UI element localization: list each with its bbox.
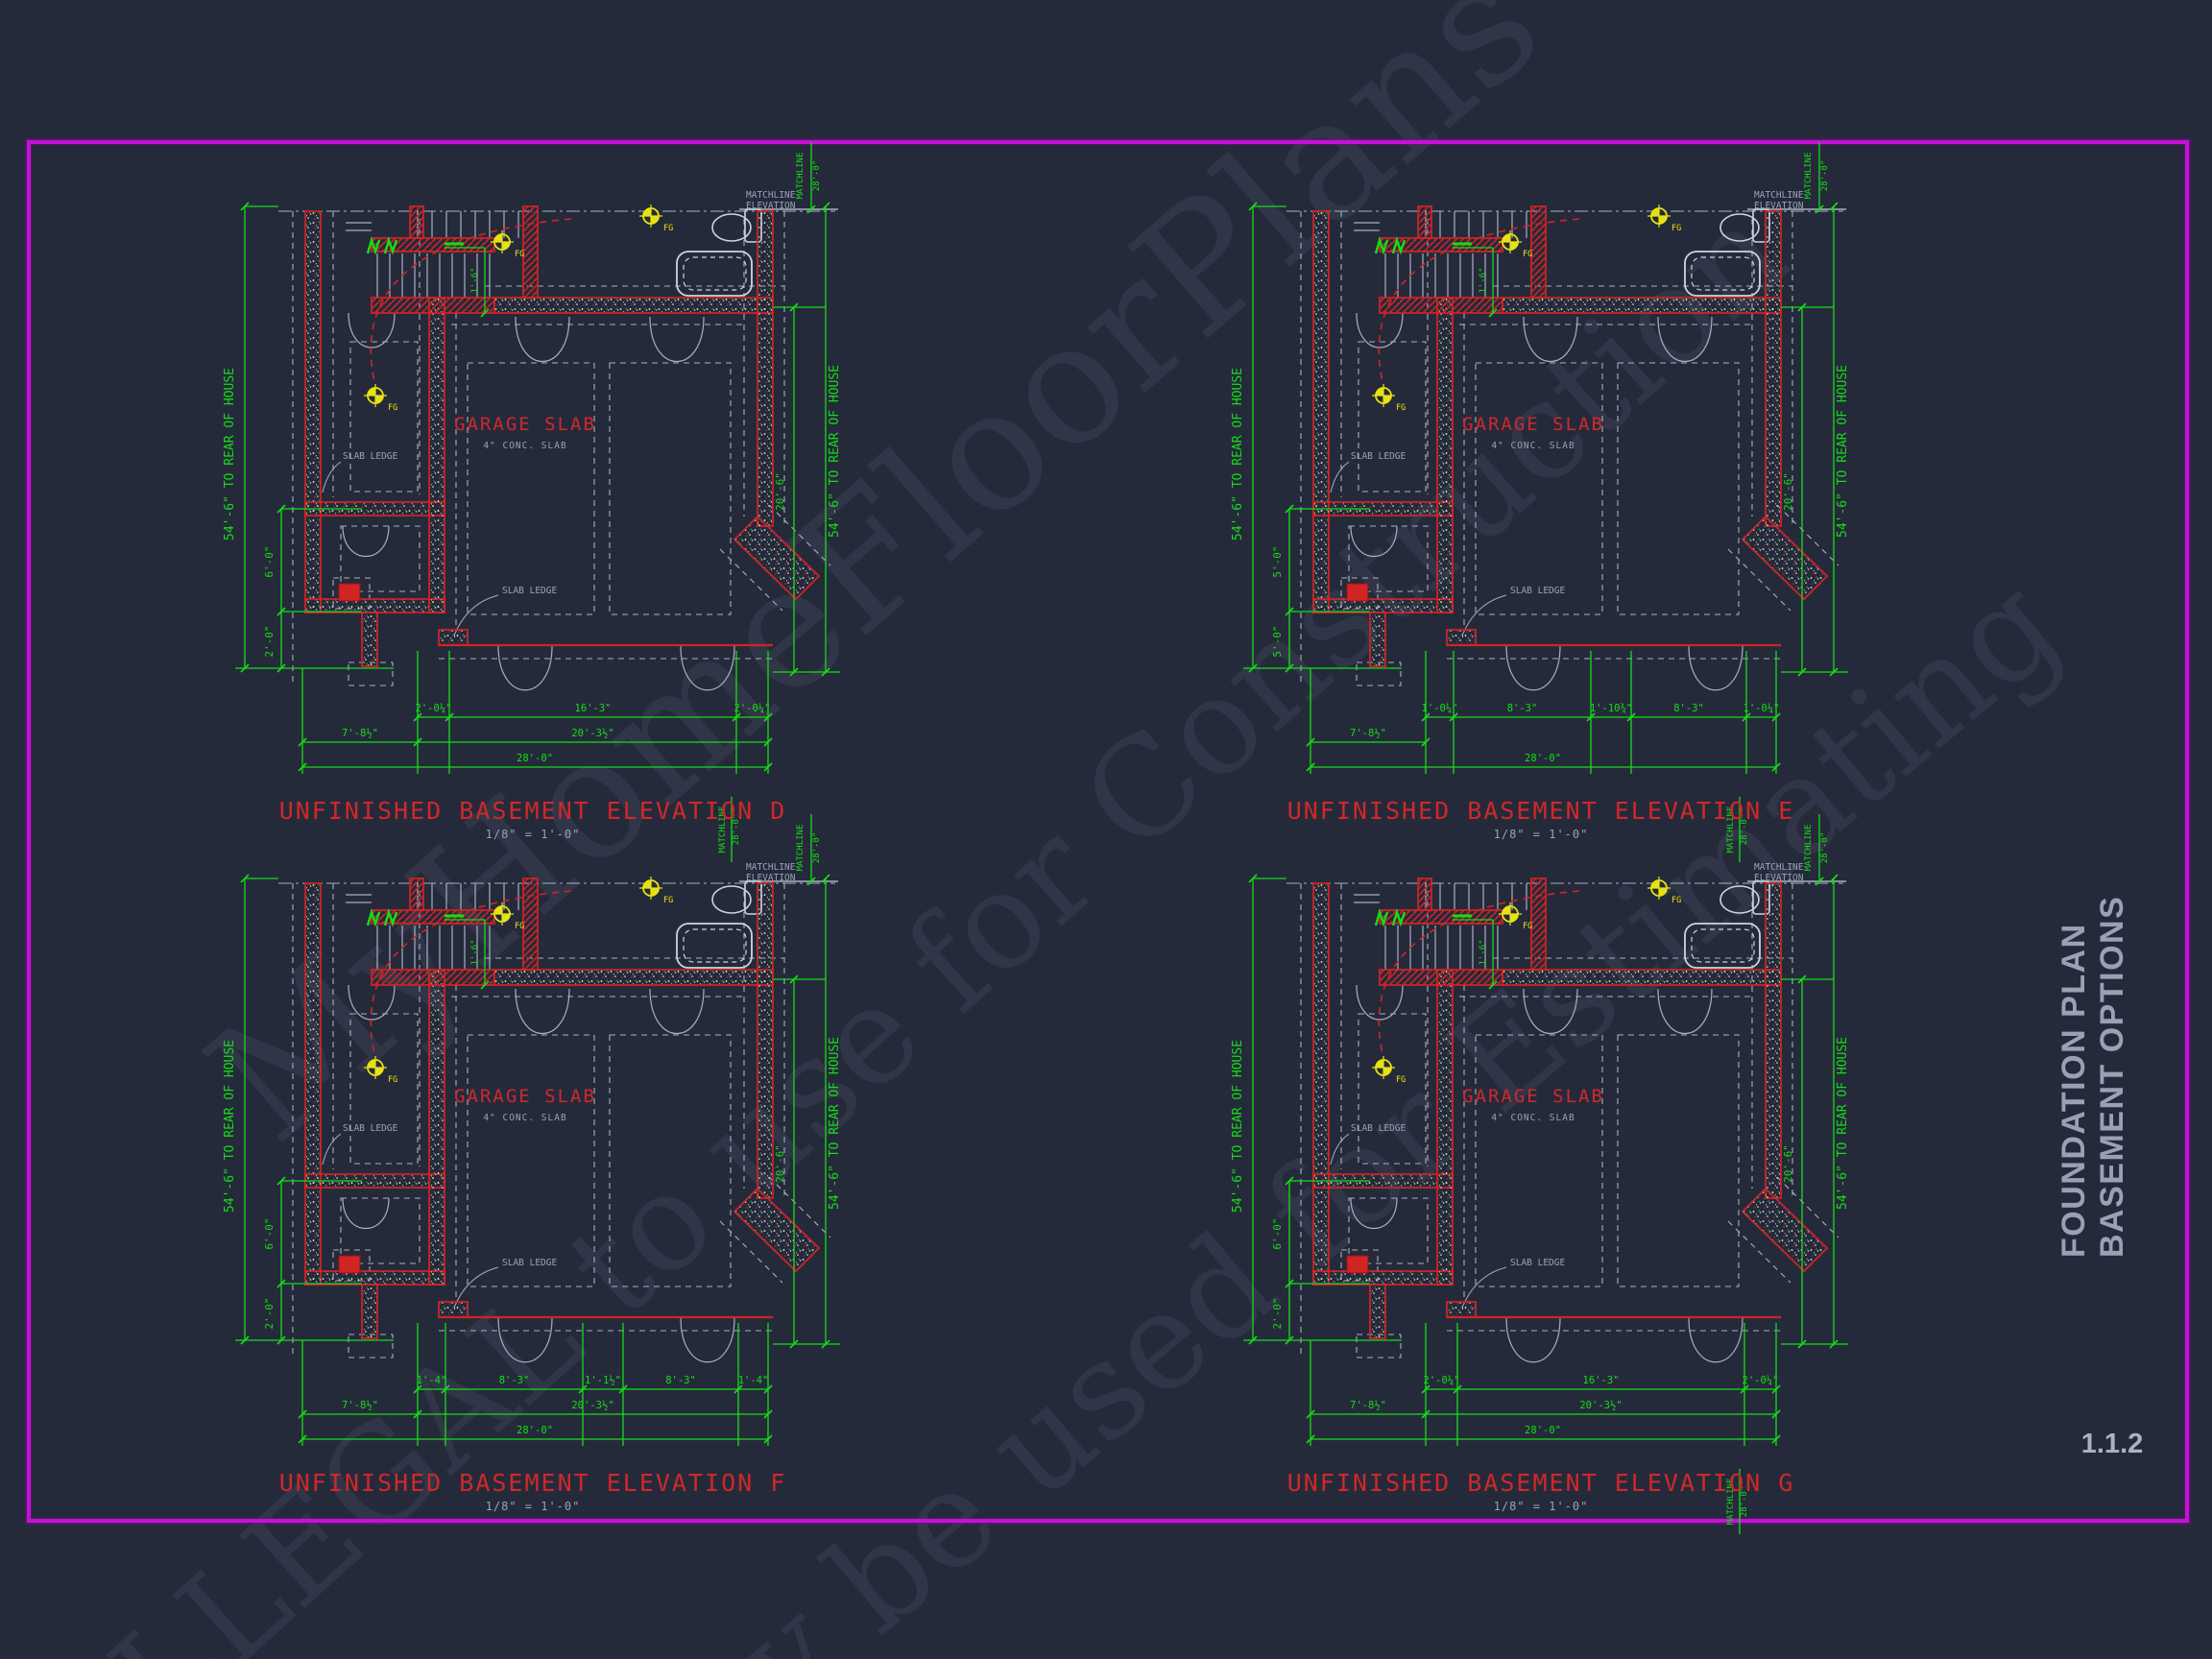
svg-text:2'-0": 2'-0" — [1271, 1297, 1284, 1329]
svg-text:2'-0¼": 2'-0¼" — [734, 703, 771, 714]
drawing-sheet: MyHomeFloorPlans ILLEGAL to use for Cons… — [0, 0, 2212, 1659]
svg-text:54'-6" TO REAR OF HOUSE: 54'-6" TO REAR OF HOUSE — [828, 365, 842, 538]
svg-text:1'-10¾": 1'-10¾" — [1590, 703, 1632, 714]
svg-text:7'-8½": 7'-8½" — [342, 1400, 378, 1411]
titleblock: FOUNDATION PLAN BASEMENT OPTIONS — [2055, 931, 2131, 1258]
svg-text:1'-6": 1'-6" — [1479, 267, 1488, 293]
walls-layer — [1313, 206, 1827, 666]
svg-text:4" CONC. SLAB: 4" CONC. SLAB — [483, 1113, 566, 1123]
svg-text:SLAB LEDGE: SLAB LEDGE — [502, 1258, 557, 1268]
svg-text:FG: FG — [1396, 1075, 1406, 1085]
svg-text:6'-0": 6'-0" — [1271, 1217, 1284, 1249]
plan-drawing-d: FGFGFG54'-6" TO REAR OF HOUSE6'-0"2'-0"5… — [197, 134, 869, 874]
svg-text:FG: FG — [515, 922, 524, 931]
svg-text:28'-0": 28'-0" — [517, 753, 553, 764]
fg-marker: FG — [1499, 230, 1532, 259]
titleblock-line1: FOUNDATION PLAN — [2056, 923, 2092, 1258]
svg-text:FG: FG — [1523, 922, 1532, 931]
svg-text:GARAGE SLAB: GARAGE SLAB — [1462, 1086, 1604, 1107]
svg-text:FG: FG — [1523, 250, 1532, 259]
svg-text:20'-6": 20'-6" — [1782, 1144, 1794, 1183]
svg-text:SLAB LEDGE: SLAB LEDGE — [502, 586, 557, 596]
svg-text:FG: FG — [1671, 896, 1681, 905]
svg-text:5'-0": 5'-0" — [1271, 625, 1284, 657]
svg-text:4" CONC. SLAB: 4" CONC. SLAB — [1491, 1113, 1575, 1123]
svg-text:20'-6": 20'-6" — [774, 1144, 786, 1183]
svg-text:4" CONC. SLAB: 4" CONC. SLAB — [483, 441, 566, 451]
svg-text:1'-6": 1'-6" — [1479, 939, 1488, 965]
svg-text:SLAB LEDGE: SLAB LEDGE — [1351, 1123, 1406, 1134]
svg-text:5'-0": 5'-0" — [1271, 545, 1284, 577]
svg-text:54'-6" TO REAR OF HOUSE: 54'-6" TO REAR OF HOUSE — [223, 1040, 237, 1213]
svg-text:20'-3½": 20'-3½" — [571, 728, 613, 739]
fg-marker: FG — [1647, 204, 1681, 233]
fg-marker: FG — [639, 877, 673, 905]
svg-text:GARAGE SLAB: GARAGE SLAB — [454, 1086, 596, 1107]
svg-text:2'-0": 2'-0" — [263, 1297, 276, 1329]
svg-text:FG: FG — [663, 224, 673, 233]
svg-text:SLAB LEDGE: SLAB LEDGE — [343, 1123, 397, 1134]
plan-drawing-g: FGFGFG54'-6" TO REAR OF HOUSE6'-0"2'-0"5… — [1205, 806, 1877, 1546]
fg-marker: FG — [364, 1056, 397, 1085]
plan-elevation-d: FGFGFG54'-6" TO REAR OF HOUSE6'-0"2'-0"5… — [197, 134, 869, 874]
svg-text:28'-0": 28'-0" — [1820, 160, 1830, 192]
svg-text:28'-0": 28'-0" — [1525, 1425, 1561, 1436]
svg-text:ELEVATION: ELEVATION — [746, 873, 796, 883]
plan-scale: 1/8" = 1'-0" — [197, 1500, 869, 1513]
svg-text:SLAB LEDGE: SLAB LEDGE — [1510, 1258, 1565, 1268]
titleblock-line2: BASEMENT OPTIONS — [2094, 896, 2130, 1258]
svg-text:FG: FG — [663, 896, 673, 905]
svg-text:20'-6": 20'-6" — [1782, 472, 1794, 511]
svg-text:1'-4": 1'-4" — [738, 1375, 769, 1386]
page-number: 1.1.2 — [2055, 1429, 2170, 1460]
svg-text:54'-6" TO REAR OF HOUSE: 54'-6" TO REAR OF HOUSE — [828, 1037, 842, 1210]
svg-text:28'-0": 28'-0" — [812, 160, 822, 192]
svg-text:2'-0¼": 2'-0¼" — [1743, 1375, 1779, 1386]
svg-text:1'-0¼": 1'-0¼" — [1422, 703, 1458, 714]
svg-text:8'-3": 8'-3" — [1673, 703, 1704, 714]
fg-marker: FG — [491, 902, 524, 931]
svg-text:16'-3": 16'-3" — [575, 703, 612, 714]
svg-text:MATCHLINE: MATCHLINE — [796, 825, 805, 872]
plan-drawing-f: FGFGFG54'-6" TO REAR OF HOUSE6'-0"2'-0"5… — [197, 806, 869, 1546]
fg-marker: FG — [639, 204, 673, 233]
plan-elevation-e: FGFGFG54'-6" TO REAR OF HOUSE5'-0"5'-0"5… — [1205, 134, 1877, 874]
svg-text:MATCHLINE: MATCHLINE — [1754, 190, 1804, 201]
fg-marker: FG — [1647, 877, 1681, 905]
plan-title: UNFINISHED BASEMENT ELEVATION F — [197, 1469, 869, 1497]
plan-scale: 1/8" = 1'-0" — [1205, 1500, 1877, 1513]
plan-elevation-f: FGFGFG54'-6" TO REAR OF HOUSE6'-0"2'-0"5… — [197, 806, 869, 1546]
svg-text:GARAGE SLAB: GARAGE SLAB — [454, 414, 596, 435]
svg-text:ELEVATION: ELEVATION — [746, 201, 796, 211]
svg-text:7'-8½": 7'-8½" — [1350, 1400, 1386, 1411]
svg-text:ELEVATION: ELEVATION — [1754, 873, 1804, 883]
fg-marker: FG — [1499, 902, 1532, 931]
svg-text:MATCHLINE: MATCHLINE — [1754, 862, 1804, 873]
svg-text:54'-6" TO REAR OF HOUSE: 54'-6" TO REAR OF HOUSE — [1231, 1040, 1245, 1213]
svg-text:2'-0¼": 2'-0¼" — [1424, 1375, 1460, 1386]
svg-text:54'-6" TO REAR OF HOUSE: 54'-6" TO REAR OF HOUSE — [1836, 1037, 1850, 1210]
walls-layer — [305, 878, 819, 1338]
svg-text:1'-6": 1'-6" — [470, 267, 480, 293]
svg-text:ELEVATION: ELEVATION — [1754, 201, 1804, 211]
svg-text:2'-0": 2'-0" — [263, 625, 276, 657]
svg-text:8'-3": 8'-3" — [499, 1375, 530, 1386]
svg-text:MATCHLINE: MATCHLINE — [1804, 153, 1814, 200]
svg-text:FG: FG — [515, 250, 524, 259]
svg-text:SLAB LEDGE: SLAB LEDGE — [1510, 586, 1565, 596]
svg-text:4" CONC. SLAB: 4" CONC. SLAB — [1491, 441, 1575, 451]
svg-text:MATCHLINE: MATCHLINE — [796, 153, 805, 200]
walls-layer — [1313, 878, 1827, 1338]
svg-text:GARAGE SLAB: GARAGE SLAB — [1462, 414, 1604, 435]
walls-layer — [305, 206, 819, 666]
svg-text:28'-0": 28'-0" — [812, 832, 822, 864]
svg-text:8'-3": 8'-3" — [665, 1375, 696, 1386]
svg-text:8'-3": 8'-3" — [1507, 703, 1538, 714]
plan-drawing-e: FGFGFG54'-6" TO REAR OF HOUSE5'-0"5'-0"5… — [1205, 134, 1877, 874]
svg-text:FG: FG — [1671, 224, 1681, 233]
plan-elevation-g: FGFGFG54'-6" TO REAR OF HOUSE6'-0"2'-0"5… — [1205, 806, 1877, 1546]
svg-text:2'-0¼": 2'-0¼" — [416, 703, 452, 714]
svg-text:1'-0¼": 1'-0¼" — [1743, 703, 1780, 714]
svg-text:28'-0": 28'-0" — [1525, 753, 1561, 764]
svg-text:FG: FG — [388, 1075, 397, 1085]
svg-text:SLAB LEDGE: SLAB LEDGE — [1351, 451, 1406, 462]
svg-text:6'-0": 6'-0" — [263, 545, 276, 577]
svg-text:20'-3½": 20'-3½" — [571, 1400, 613, 1411]
svg-text:1'-1½": 1'-1½" — [585, 1375, 621, 1386]
svg-text:16'-3": 16'-3" — [1583, 1375, 1620, 1386]
svg-text:1'-6": 1'-6" — [470, 939, 480, 965]
svg-text:54'-6" TO REAR OF HOUSE: 54'-6" TO REAR OF HOUSE — [223, 368, 237, 541]
svg-text:20'-3½": 20'-3½" — [1579, 1400, 1622, 1411]
fg-marker: FG — [364, 384, 397, 413]
fg-marker: FG — [491, 230, 524, 259]
fg-marker: FG — [1372, 384, 1406, 413]
svg-text:7'-8½": 7'-8½" — [342, 728, 378, 739]
svg-text:MATCHLINE: MATCHLINE — [746, 190, 796, 201]
svg-text:MATCHLINE: MATCHLINE — [1804, 825, 1814, 872]
plan-title: UNFINISHED BASEMENT ELEVATION G — [1205, 1469, 1877, 1497]
svg-text:FG: FG — [1396, 403, 1406, 413]
svg-text:28'-0": 28'-0" — [1820, 832, 1830, 864]
svg-text:SLAB LEDGE: SLAB LEDGE — [343, 451, 397, 462]
svg-text:1'-4": 1'-4" — [417, 1375, 447, 1386]
svg-text:20'-6": 20'-6" — [774, 472, 786, 511]
fg-marker: FG — [1372, 1056, 1406, 1085]
svg-text:54'-6" TO REAR OF HOUSE: 54'-6" TO REAR OF HOUSE — [1231, 368, 1245, 541]
svg-text:FG: FG — [388, 403, 397, 413]
svg-text:6'-0": 6'-0" — [263, 1217, 276, 1249]
svg-text:MATCHLINE: MATCHLINE — [746, 862, 796, 873]
svg-text:7'-8½": 7'-8½" — [1350, 728, 1386, 739]
svg-text:28'-0": 28'-0" — [517, 1425, 553, 1436]
svg-text:54'-6" TO REAR OF HOUSE: 54'-6" TO REAR OF HOUSE — [1836, 365, 1850, 538]
